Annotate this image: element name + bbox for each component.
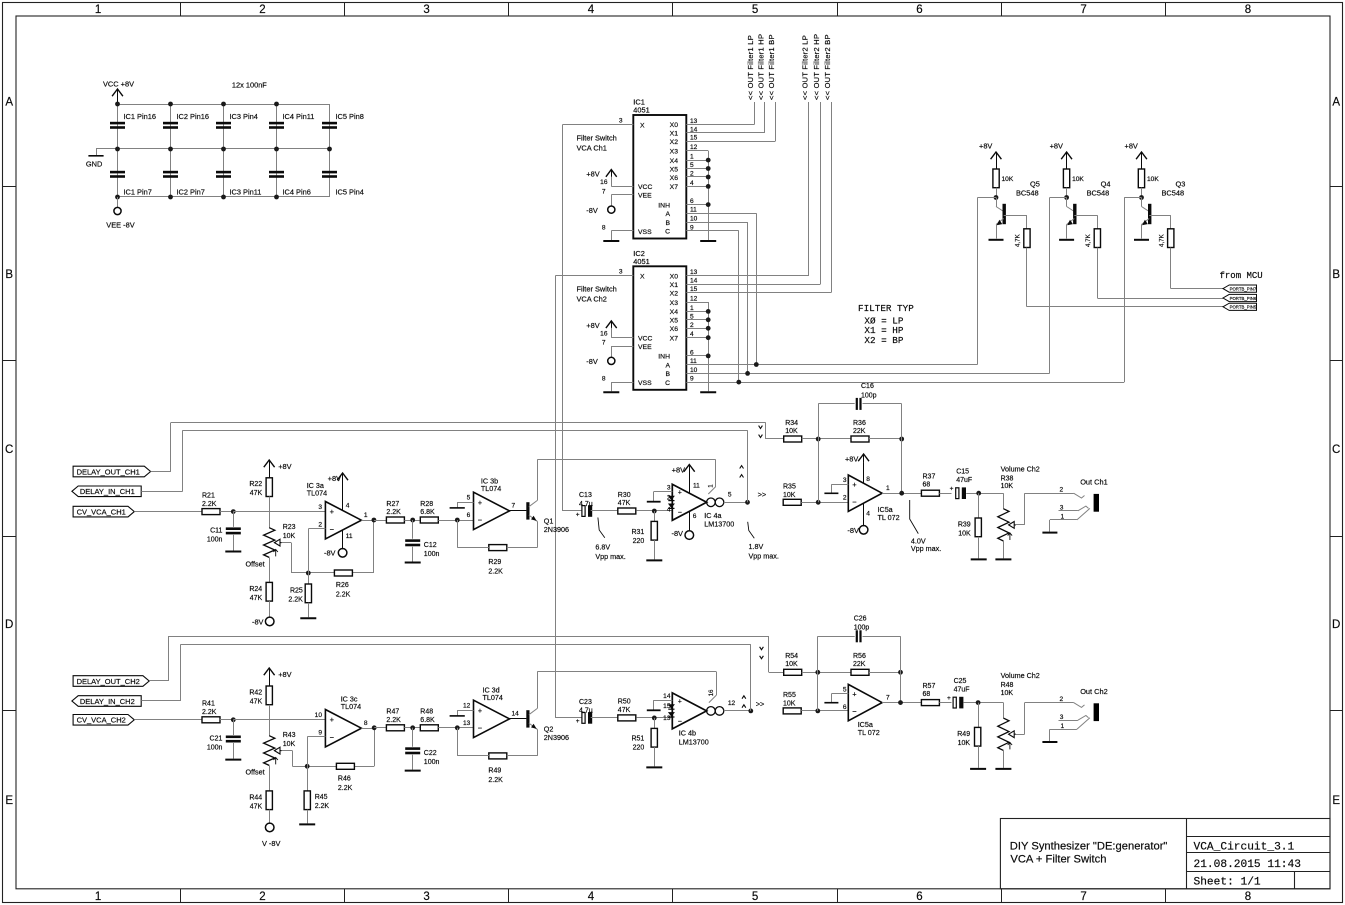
svg-text:C23: C23 <box>579 699 592 706</box>
svg-text:5: 5 <box>690 313 694 320</box>
svg-text:16: 16 <box>600 331 608 338</box>
svg-text:13: 13 <box>663 715 671 722</box>
svg-text:6: 6 <box>843 704 847 711</box>
svg-text:R41: R41 <box>202 701 215 708</box>
svg-text:Sheet: 1/1: Sheet: 1/1 <box>1194 877 1261 889</box>
svg-text:1: 1 <box>95 891 101 903</box>
svg-text:+: + <box>576 718 580 725</box>
svg-text:PORTB_PIN7: PORTB_PIN7 <box>1230 287 1257 292</box>
svg-text:8: 8 <box>866 476 870 483</box>
svg-text:X: X <box>640 274 645 281</box>
svg-text:8: 8 <box>602 224 606 231</box>
svg-text:R48: R48 <box>420 709 433 716</box>
svg-text:47K: 47K <box>250 595 263 602</box>
svg-text:R38: R38 <box>1001 475 1014 482</box>
svg-text:16: 16 <box>600 179 608 186</box>
svg-text:1: 1 <box>690 305 694 312</box>
svg-text:B: B <box>1332 269 1340 281</box>
svg-text:IC4 Pin6: IC4 Pin6 <box>283 188 311 197</box>
svg-text:1: 1 <box>95 4 101 16</box>
svg-text:9: 9 <box>690 376 694 383</box>
svg-text:C: C <box>1332 444 1340 456</box>
svg-text:<< OUT Filter2 HP: << OUT Filter2 HP <box>812 34 821 100</box>
svg-text:4: 4 <box>667 507 671 514</box>
svg-text:C25: C25 <box>954 678 967 685</box>
svg-text:2.2K: 2.2K <box>386 717 401 724</box>
svg-text:4: 4 <box>346 503 350 510</box>
svg-text:10K: 10K <box>283 533 296 540</box>
svg-text:<< OUT Filter2 BP: << OUT Filter2 BP <box>823 34 832 100</box>
svg-text:C: C <box>665 380 670 387</box>
svg-text:C16: C16 <box>861 383 874 390</box>
svg-text:−: − <box>678 510 682 517</box>
svg-text:7: 7 <box>1080 4 1086 16</box>
svg-text:R29: R29 <box>488 559 501 566</box>
svg-text:Filter Switch: Filter Switch <box>577 133 617 142</box>
svg-text:R28: R28 <box>420 501 433 508</box>
svg-text:10: 10 <box>315 712 323 719</box>
svg-text:−: − <box>330 733 335 742</box>
svg-text:VCA Ch2: VCA Ch2 <box>577 295 607 304</box>
svg-text:1.8V: 1.8V <box>749 542 764 551</box>
svg-text:3: 3 <box>423 891 429 903</box>
svg-text:IC 4a: IC 4a <box>704 511 721 520</box>
svg-text:2N3906: 2N3906 <box>544 525 569 534</box>
svg-text:R39: R39 <box>958 521 971 528</box>
svg-text:TL 072: TL 072 <box>858 728 880 737</box>
svg-text:X7: X7 <box>670 184 679 191</box>
svg-text:X1: X1 <box>670 131 679 138</box>
svg-text:B: B <box>665 220 670 227</box>
svg-text:3: 3 <box>1060 714 1064 721</box>
svg-text:C12: C12 <box>424 542 437 549</box>
svg-text:C: C <box>5 444 13 456</box>
svg-text:4: 4 <box>588 891 595 903</box>
svg-text:12: 12 <box>690 296 698 303</box>
svg-text:D: D <box>1332 619 1340 631</box>
svg-text:2.2K: 2.2K <box>288 596 303 603</box>
svg-text:X4: X4 <box>670 158 679 165</box>
svg-text:-8V: -8V <box>252 617 264 626</box>
svg-text:X1: X1 <box>670 282 679 289</box>
svg-text:+8V: +8V <box>845 454 858 463</box>
svg-text:DIY Synthesizer "DE:generator": DIY Synthesizer "DE:generator" <box>1010 841 1168 853</box>
svg-text:C15: C15 <box>956 469 969 476</box>
svg-text:10K: 10K <box>785 661 798 668</box>
svg-text:R34: R34 <box>785 420 798 427</box>
svg-text:-8V: -8V <box>586 206 598 215</box>
svg-text:BC548: BC548 <box>1016 188 1039 197</box>
svg-text:Offset: Offset <box>246 560 265 569</box>
svg-text:FILTER TYP: FILTER TYP <box>858 303 914 314</box>
svg-text:Q3: Q3 <box>1176 180 1186 189</box>
svg-text:−: − <box>852 498 857 507</box>
svg-text:A: A <box>5 97 13 109</box>
svg-text:X6: X6 <box>670 175 679 182</box>
svg-text:13: 13 <box>690 118 698 125</box>
svg-text:R47: R47 <box>386 709 399 716</box>
svg-text:10K: 10K <box>958 530 971 537</box>
svg-text:Vpp max.: Vpp max. <box>911 544 941 553</box>
svg-text:Volume Ch2: Volume Ch2 <box>1001 464 1040 473</box>
svg-text:12x 100nF: 12x 100nF <box>232 81 267 90</box>
svg-text:68: 68 <box>923 691 931 698</box>
svg-text:IC3 Pin11: IC3 Pin11 <box>230 188 262 197</box>
svg-text:Q4: Q4 <box>1101 180 1111 189</box>
svg-text:R50: R50 <box>618 699 631 706</box>
svg-text:+: + <box>947 695 951 702</box>
svg-text:4.7µ: 4.7µ <box>579 708 593 715</box>
svg-text:R57: R57 <box>923 683 936 690</box>
svg-text:2.2K: 2.2K <box>202 709 217 716</box>
svg-text:68: 68 <box>923 482 931 489</box>
svg-text:2: 2 <box>667 494 671 501</box>
svg-text:R37: R37 <box>923 474 936 481</box>
svg-text:47K: 47K <box>250 803 263 810</box>
svg-text:10: 10 <box>690 216 698 223</box>
svg-text:+: + <box>330 507 335 516</box>
svg-text:2N3906: 2N3906 <box>544 733 569 742</box>
svg-text:6: 6 <box>467 512 471 519</box>
svg-text:+8V: +8V <box>672 466 685 475</box>
svg-text:R56: R56 <box>853 653 866 660</box>
svg-text:5: 5 <box>752 891 758 903</box>
svg-text:4: 4 <box>866 510 870 517</box>
svg-text:VEE -8V: VEE -8V <box>106 221 134 230</box>
svg-text:TL074: TL074 <box>341 702 361 711</box>
svg-text:GND: GND <box>86 160 102 169</box>
svg-text:IC4 Pin11: IC4 Pin11 <box>283 112 315 121</box>
svg-text:R55: R55 <box>783 692 796 699</box>
svg-text:R51: R51 <box>631 736 644 743</box>
svg-text:+: + <box>678 698 682 705</box>
svg-text:220: 220 <box>633 538 645 545</box>
svg-text:X2: X2 <box>670 139 679 146</box>
svg-text:16: 16 <box>708 689 715 696</box>
svg-text:−: − <box>330 525 335 534</box>
svg-text:8: 8 <box>1245 4 1251 16</box>
svg-text:X4: X4 <box>670 309 679 316</box>
svg-text:R36: R36 <box>853 420 866 427</box>
svg-text:R44: R44 <box>249 794 262 801</box>
svg-text:VCA_Circuit_3.1: VCA_Circuit_3.1 <box>1194 842 1295 854</box>
svg-text:B: B <box>5 269 13 281</box>
svg-text:X2: X2 <box>670 290 679 297</box>
svg-text:1: 1 <box>690 154 694 161</box>
svg-text:+8V: +8V <box>278 670 291 679</box>
svg-text:+8V: +8V <box>278 462 291 471</box>
svg-text:VCC +8V: VCC +8V <box>103 80 134 89</box>
svg-text:−: − <box>678 718 682 725</box>
svg-text:+8V: +8V <box>586 170 599 179</box>
svg-text:BC548: BC548 <box>1162 188 1185 197</box>
svg-text:4: 4 <box>690 180 694 187</box>
svg-text:11: 11 <box>690 358 697 365</box>
svg-text:INH: INH <box>658 354 670 361</box>
svg-text:22K: 22K <box>853 428 866 435</box>
svg-text:>>: >> <box>758 490 767 499</box>
svg-text:X5: X5 <box>670 166 679 173</box>
svg-text:4051: 4051 <box>633 106 649 115</box>
svg-text:13: 13 <box>463 720 471 727</box>
svg-text:X5: X5 <box>670 318 679 325</box>
svg-text:4: 4 <box>690 331 694 338</box>
svg-text:10K: 10K <box>1147 176 1159 183</box>
svg-text:6: 6 <box>690 349 694 356</box>
svg-text:VCC: VCC <box>638 336 652 343</box>
svg-text:C22: C22 <box>424 750 437 757</box>
svg-text:3: 3 <box>619 117 623 124</box>
svg-text:DELAY_OUT_CH1: DELAY_OUT_CH1 <box>77 467 140 476</box>
svg-text:B: B <box>665 371 670 378</box>
svg-text:X3: X3 <box>670 149 679 156</box>
svg-text:X0: X0 <box>670 274 679 281</box>
svg-text:7: 7 <box>886 694 890 701</box>
svg-text:11: 11 <box>346 533 353 540</box>
svg-text:TL 072: TL 072 <box>878 513 900 522</box>
svg-text:−: − <box>478 516 483 525</box>
svg-text:9: 9 <box>318 730 322 737</box>
svg-text:3: 3 <box>667 485 671 492</box>
svg-text:47uF: 47uF <box>956 477 972 484</box>
svg-text:<< OUT Filter1 LP: << OUT Filter1 LP <box>746 35 755 100</box>
svg-text:C: C <box>665 229 670 236</box>
svg-text:D: D <box>5 619 13 631</box>
svg-text:7: 7 <box>602 340 606 347</box>
svg-text:2: 2 <box>1060 696 1064 703</box>
svg-text:R27: R27 <box>386 501 399 508</box>
svg-text:LM13700: LM13700 <box>679 737 709 746</box>
svg-text:3: 3 <box>619 269 623 276</box>
svg-text:10K: 10K <box>1001 483 1014 490</box>
svg-text:4.7µ: 4.7µ <box>579 501 593 508</box>
svg-text:2.2K: 2.2K <box>338 785 353 792</box>
svg-text:2: 2 <box>259 891 265 903</box>
svg-text:5: 5 <box>752 4 758 16</box>
svg-text:2: 2 <box>843 494 847 501</box>
svg-text:R25: R25 <box>290 587 303 594</box>
svg-text:TL074: TL074 <box>483 693 503 702</box>
svg-text:1: 1 <box>886 485 890 492</box>
svg-text:11: 11 <box>690 207 697 214</box>
svg-text:47K: 47K <box>250 698 263 705</box>
svg-text:8: 8 <box>1245 891 1251 903</box>
svg-text:2: 2 <box>1060 487 1064 494</box>
svg-text:5: 5 <box>690 162 694 169</box>
svg-text:IC1 Pin7: IC1 Pin7 <box>124 188 152 197</box>
svg-text:V -8V: V -8V <box>262 839 281 848</box>
svg-text:R21: R21 <box>202 492 215 499</box>
svg-text:47uF: 47uF <box>954 687 970 694</box>
svg-text:−: − <box>478 724 483 733</box>
svg-text:IC 4b: IC 4b <box>679 729 696 738</box>
svg-text:INH: INH <box>658 202 670 209</box>
svg-text:2: 2 <box>690 171 694 178</box>
svg-text:10: 10 <box>690 367 698 374</box>
svg-text:X7: X7 <box>670 336 679 343</box>
svg-text:Volume Ch2: Volume Ch2 <box>1001 671 1040 680</box>
svg-text:4,7K: 4,7K <box>1014 233 1021 247</box>
svg-text:3: 3 <box>843 477 847 484</box>
svg-text:+: + <box>678 490 682 497</box>
svg-text:+8V: +8V <box>586 321 599 330</box>
svg-text:R22: R22 <box>249 481 262 488</box>
svg-text:2.2K: 2.2K <box>315 803 330 810</box>
svg-text:TL074: TL074 <box>307 489 327 498</box>
svg-text:5: 5 <box>843 686 847 693</box>
svg-text:8: 8 <box>602 376 606 383</box>
svg-text:R45: R45 <box>315 794 328 801</box>
svg-text:-8V: -8V <box>671 529 683 538</box>
svg-text:R24: R24 <box>249 586 262 593</box>
svg-text:+: + <box>852 689 857 698</box>
svg-text:PORTB_PIN6: PORTB_PIN6 <box>1230 296 1257 301</box>
svg-text:47K: 47K <box>618 500 631 507</box>
svg-text:C13: C13 <box>579 492 592 499</box>
svg-text:Offset: Offset <box>246 768 265 777</box>
svg-text:+: + <box>330 715 335 724</box>
svg-text:<< OUT Filter1 BP: << OUT Filter1 BP <box>767 34 776 100</box>
svg-text:-8V: -8V <box>847 526 859 535</box>
svg-text:BC548: BC548 <box>1087 188 1110 197</box>
svg-text:−: − <box>852 707 857 716</box>
svg-text:+8V: +8V <box>1050 142 1063 151</box>
svg-text:IC3 Pin4: IC3 Pin4 <box>230 112 258 121</box>
svg-text:7: 7 <box>602 188 606 195</box>
svg-text:Q2: Q2 <box>544 724 554 733</box>
svg-text:220: 220 <box>633 745 645 752</box>
svg-text:X0: X0 <box>670 122 679 129</box>
svg-text:6.8K: 6.8K <box>420 509 435 516</box>
svg-text:R49: R49 <box>488 767 501 774</box>
svg-text:15: 15 <box>690 286 698 293</box>
svg-text:DELAY_IN_CH2: DELAY_IN_CH2 <box>80 697 135 706</box>
svg-text:15: 15 <box>690 135 698 142</box>
svg-text:R48: R48 <box>1001 682 1014 689</box>
svg-text:1: 1 <box>364 512 368 519</box>
svg-text:<< OUT Filter1 HP: << OUT Filter1 HP <box>756 34 765 100</box>
svg-text:15: 15 <box>663 703 671 710</box>
svg-text:Filter Switch: Filter Switch <box>577 285 617 294</box>
svg-text:14: 14 <box>690 278 698 285</box>
svg-text:100n: 100n <box>207 536 223 543</box>
svg-text:21.08.2015 11:43: 21.08.2015 11:43 <box>1194 859 1301 871</box>
svg-text:A: A <box>1332 97 1340 109</box>
svg-text:X3: X3 <box>670 300 679 307</box>
svg-text:3: 3 <box>423 4 429 16</box>
svg-text:7: 7 <box>512 503 516 510</box>
svg-text:X: X <box>640 122 645 129</box>
svg-text:2.2K: 2.2K <box>386 509 401 516</box>
svg-text:R30: R30 <box>618 492 631 499</box>
svg-text:10K: 10K <box>783 492 796 499</box>
svg-text:10K: 10K <box>783 701 796 708</box>
svg-text:Out Ch2: Out Ch2 <box>1080 687 1108 696</box>
svg-text:+: + <box>576 511 580 518</box>
svg-text:+8V: +8V <box>328 474 341 483</box>
svg-text:DELAY_OUT_CH2: DELAY_OUT_CH2 <box>77 677 140 686</box>
svg-text:6: 6 <box>693 513 697 520</box>
svg-text:6.8V: 6.8V <box>595 543 610 552</box>
svg-text:100p: 100p <box>854 625 870 632</box>
svg-text:VEE: VEE <box>638 344 652 351</box>
svg-text:2.2K: 2.2K <box>488 777 503 784</box>
svg-text:R43: R43 <box>283 732 296 739</box>
svg-text:IC1 Pin16: IC1 Pin16 <box>124 112 156 121</box>
svg-text:Vpp max.: Vpp max. <box>749 551 779 560</box>
svg-text:4,7K: 4,7K <box>1085 233 1092 247</box>
svg-text:1: 1 <box>707 484 714 488</box>
svg-text:100n: 100n <box>207 745 223 752</box>
svg-text:4051: 4051 <box>633 257 649 266</box>
svg-text:100p: 100p <box>861 392 877 399</box>
svg-text:10K: 10K <box>785 428 798 435</box>
svg-text:14: 14 <box>663 693 671 700</box>
svg-text:10K: 10K <box>1072 176 1084 183</box>
svg-text:>>: >> <box>756 700 765 709</box>
svg-text:5: 5 <box>728 491 732 498</box>
svg-text:10K: 10K <box>1002 176 1014 183</box>
svg-text:8: 8 <box>364 720 368 727</box>
svg-text:R26: R26 <box>336 582 349 589</box>
svg-text:Out Ch1: Out Ch1 <box>1080 477 1108 486</box>
svg-text:11: 11 <box>693 482 700 489</box>
svg-text:A: A <box>665 211 670 218</box>
svg-text:R49: R49 <box>957 731 970 738</box>
svg-text:12: 12 <box>690 144 698 151</box>
svg-text:+8V: +8V <box>1125 142 1138 151</box>
svg-text:4: 4 <box>588 4 595 16</box>
svg-text:E: E <box>1332 795 1340 807</box>
svg-text:CV_VCA_CH2: CV_VCA_CH2 <box>77 716 126 725</box>
svg-text:C21: C21 <box>210 736 223 743</box>
svg-text:IC2 Pin7: IC2 Pin7 <box>177 188 205 197</box>
svg-text:6: 6 <box>916 891 922 903</box>
svg-text:VSS: VSS <box>638 229 652 236</box>
svg-text:LM13700: LM13700 <box>704 520 734 529</box>
svg-text:6: 6 <box>916 4 922 16</box>
svg-text:+: + <box>852 480 857 489</box>
svg-text:47K: 47K <box>618 707 631 714</box>
svg-text:R46: R46 <box>338 775 351 782</box>
svg-text:R54: R54 <box>785 653 798 660</box>
svg-text:VCA + Filter Switch: VCA + Filter Switch <box>1010 853 1106 865</box>
svg-text:X2 = BP: X2 = BP <box>864 335 903 346</box>
svg-text:14: 14 <box>512 711 520 718</box>
svg-text:10K: 10K <box>283 741 296 748</box>
svg-text:-8V: -8V <box>324 548 336 557</box>
svg-text:VCA Ch1: VCA Ch1 <box>577 143 607 152</box>
svg-text:+: + <box>478 706 483 715</box>
svg-text:+: + <box>478 498 483 507</box>
svg-text:DELAY_IN_CH1: DELAY_IN_CH1 <box>80 487 135 496</box>
svg-text:VCC: VCC <box>638 184 652 191</box>
svg-text:3: 3 <box>318 504 322 511</box>
svg-text:10K: 10K <box>1001 690 1014 697</box>
svg-text:2: 2 <box>259 4 265 16</box>
svg-text:E: E <box>5 795 13 807</box>
svg-text:+8V: +8V <box>979 142 992 151</box>
svg-text:IC5 Pin4: IC5 Pin4 <box>336 188 364 197</box>
svg-text:6: 6 <box>690 198 694 205</box>
svg-text:from MCU: from MCU <box>1220 271 1263 281</box>
svg-text:2: 2 <box>690 322 694 329</box>
svg-text:2.2K: 2.2K <box>336 592 351 599</box>
svg-text:4,7K: 4,7K <box>1158 233 1165 247</box>
svg-text:C11: C11 <box>210 527 222 534</box>
svg-text:R42: R42 <box>249 689 262 696</box>
svg-text:-8V: -8V <box>586 357 598 366</box>
